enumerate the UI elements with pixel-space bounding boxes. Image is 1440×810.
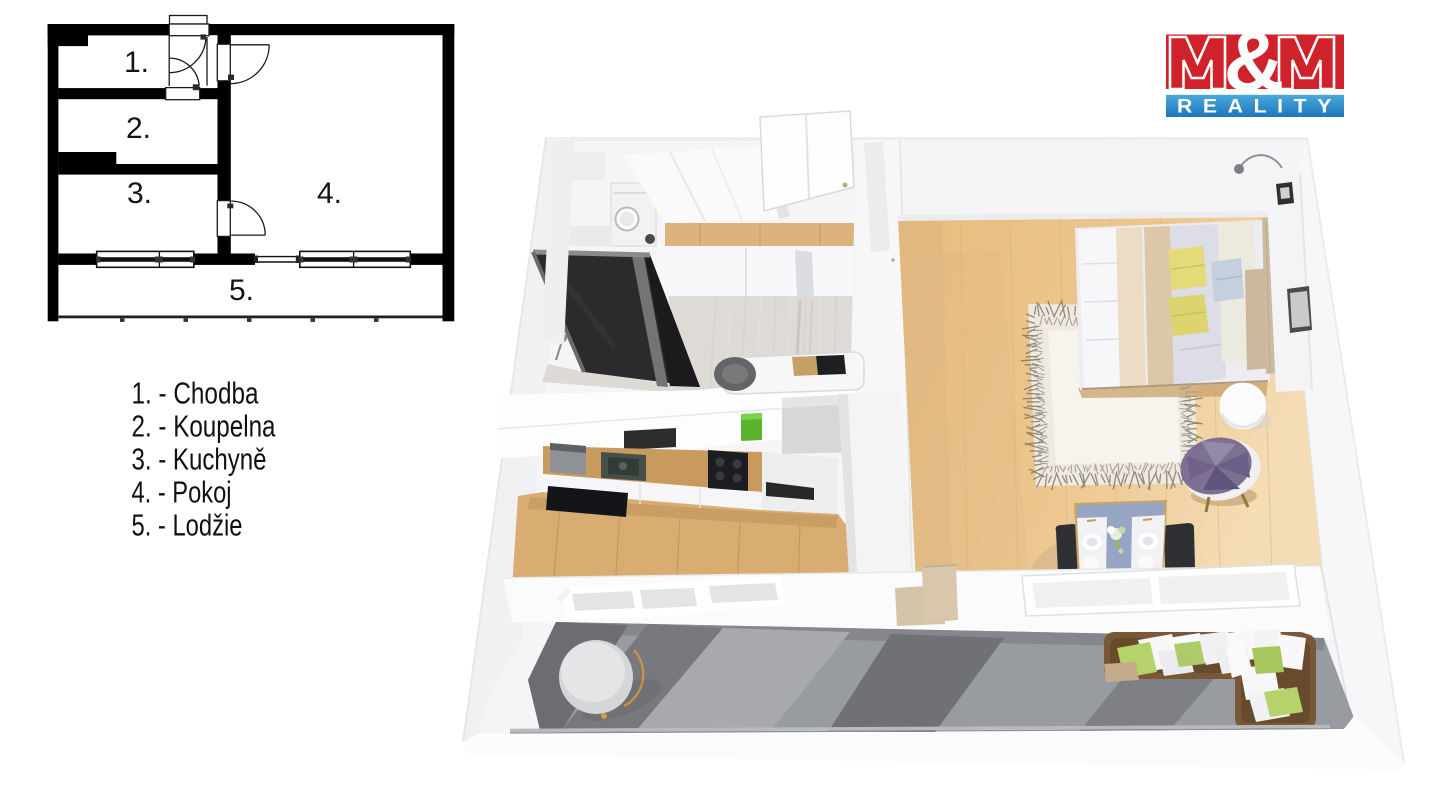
svg-text:3.: 3.	[127, 177, 152, 210]
svg-text:2.: 2.	[126, 112, 151, 145]
svg-text:3. - Kuchyně: 3. - Kuchyně	[132, 442, 267, 477]
svg-text:5.: 5.	[229, 274, 254, 307]
svg-text:REALITY: REALITY	[1177, 97, 1342, 118]
svg-text:4.: 4.	[317, 177, 342, 210]
svg-text:4. - Pokoj: 4. - Pokoj	[132, 475, 232, 510]
svg-text:2. - Koupelna: 2. - Koupelna	[132, 409, 277, 444]
svg-text:&: &	[1224, 14, 1285, 108]
svg-text:5. - Lodžie: 5. - Lodžie	[132, 508, 243, 543]
svg-text:1.: 1.	[124, 46, 149, 79]
svg-text:1. - Chodba: 1. - Chodba	[132, 376, 260, 411]
